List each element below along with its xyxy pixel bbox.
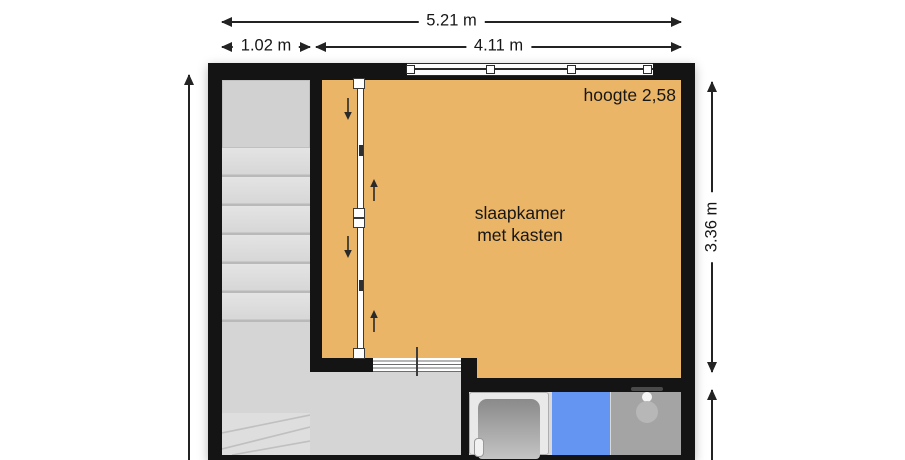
dimension-line [711, 390, 713, 460]
arrow-up-icon [369, 179, 379, 201]
shower-spray [636, 401, 658, 423]
winder-steps [222, 413, 310, 455]
bathtub-icon [469, 392, 549, 455]
shower-room-floor [611, 392, 681, 455]
arrow-down-icon [343, 98, 353, 120]
dim-total-width-label: 5.21 m [418, 12, 484, 31]
arrow-left-icon [315, 42, 326, 52]
bedroom-floor-extension [477, 358, 681, 378]
hallway-lower-floor [310, 372, 461, 455]
window-mullion [643, 65, 652, 74]
track-anchor [353, 78, 365, 89]
arrow-left-icon [221, 17, 232, 27]
arrow-down-icon [343, 236, 353, 258]
room-label-line2: met kasten [430, 224, 610, 246]
dimension-line [188, 75, 190, 460]
window-mullion [486, 65, 495, 74]
dim-stair-width-label: 1.02 m [233, 37, 299, 56]
arrow-up-icon [184, 74, 194, 85]
closet-door-handle [359, 145, 363, 156]
arrow-right-icon [671, 17, 682, 27]
track-anchor [353, 218, 365, 228]
arrow-down-icon [707, 362, 717, 373]
floorplan-canvas: 5.21 m 1.02 m 4.11 m 3.36 m [0, 0, 905, 460]
arrow-right-icon [671, 42, 682, 52]
window-mullion [406, 65, 415, 74]
room-label: slaapkamer met kasten [430, 202, 610, 246]
staircase-treads [222, 148, 310, 322]
closet-door-handle [359, 280, 363, 291]
track-anchor [353, 208, 365, 218]
window-mullion [567, 65, 576, 74]
arrow-up-icon [369, 310, 379, 332]
bathtub-basin [478, 399, 540, 459]
dim-bedroom-width-label: 4.11 m [466, 37, 531, 56]
window [407, 63, 653, 76]
door-leaf [416, 347, 418, 376]
arrow-up-icon [707, 389, 717, 400]
window-frame-line [407, 68, 653, 69]
bathtub-faucet-icon [474, 438, 484, 457]
dim-bedroom-depth-label: 3.36 m [701, 192, 724, 262]
shower-bar [631, 387, 663, 391]
shower-area [552, 392, 610, 455]
winder-steps-lines [222, 413, 310, 455]
arrow-left-icon [221, 42, 232, 52]
height-note: hoogte 2,58 [496, 85, 676, 106]
room-label-line1: slaapkamer [430, 202, 610, 224]
arrow-up-icon [707, 81, 717, 92]
stair-landing [222, 80, 310, 148]
arrow-right-icon [300, 42, 311, 52]
track-anchor [353, 348, 365, 359]
